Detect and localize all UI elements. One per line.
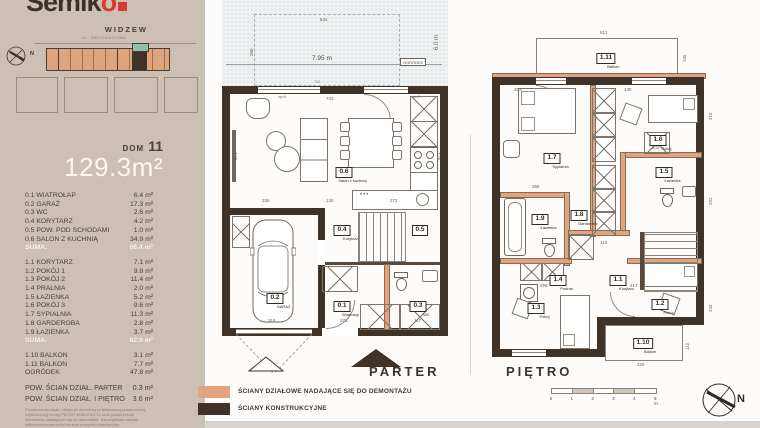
scale-tick-label: 3 [612, 396, 615, 401]
dim-label: 512 [600, 30, 608, 35]
toilet [660, 188, 674, 207]
wardrobe-hatch [322, 266, 358, 292]
plan-parter: 544 200 7.95 m 6.0 m OGRÓDEK hp=0 hp=0 7… [222, 0, 452, 385]
scale-segment [634, 388, 657, 394]
coffee-table [274, 146, 300, 172]
scale-tick-label: 5 m [654, 396, 658, 406]
armchair [503, 140, 520, 158]
dim-label: 110 [600, 240, 607, 245]
stove [410, 147, 438, 173]
dim-label: 316 [268, 318, 276, 323]
list-item: 1.1 KORYTARZ7.1 m² [25, 259, 153, 268]
total-area: 129.3m² [64, 152, 163, 183]
suma-ground: SUMA:66.4 m² [25, 244, 153, 253]
room-label-wc: 0.3 WC [410, 294, 427, 317]
room-label-lazienka-15: 1.5 Łazienka [656, 160, 673, 183]
floor-label-parter: PARTER [369, 364, 439, 379]
list-item: 0.1 WIATROŁAP6.4 m² [25, 192, 153, 201]
wardrobe-hatch [592, 88, 616, 114]
building-outline [64, 77, 108, 113]
desk [619, 102, 642, 125]
highlight-unit-garden [132, 43, 149, 52]
room-label-pokoj-16: 1.6 Pokój [650, 128, 667, 151]
room-label-garaz: 0.2 GARAŻ [267, 286, 284, 309]
wardrobe-hatch [568, 234, 594, 260]
building-outline [16, 77, 58, 113]
plans-divider [470, 135, 471, 375]
list-item: OGRÓDEK47.8 m² [25, 369, 153, 378]
wall [492, 349, 605, 357]
dim-label: 336 [262, 198, 270, 203]
legend-swatch-structural [198, 403, 230, 415]
list-item: 1.7 SYPIALNIA11.3 m² [25, 311, 153, 320]
tv-panel [232, 130, 236, 182]
bed [560, 295, 590, 349]
toilet [542, 238, 556, 257]
dim-label: 7.95 m [312, 55, 332, 62]
brand-mark-icon [118, 2, 127, 11]
dim-label: 430 [624, 87, 632, 92]
kitchen-cabinet-hatch [410, 121, 438, 147]
wardrobe-hatch [360, 304, 400, 330]
compass-n-label: N [737, 393, 745, 405]
armchair [246, 98, 270, 119]
scale-bar: 0 1 2 3 4 5 m [548, 388, 660, 402]
disclaimer-fineprint: Powierzchnia lokalu obejmuje określoną p… [25, 407, 153, 427]
scale-segment [551, 388, 574, 394]
bed [518, 88, 576, 134]
door-opening [318, 240, 325, 265]
brand-logo: Semiko [26, 0, 127, 18]
legend-label-structural: ŚCIANY KONSTRUKCYJNE [238, 405, 327, 412]
terrace-outline [254, 14, 400, 86]
toilet [394, 272, 408, 291]
list-item: 1.9 ŁAZIENKA3.7 m² [25, 329, 153, 338]
room-label-pralnia: 1.4 Pralnia [550, 268, 567, 291]
dim-label: 145 [682, 54, 687, 62]
dim-label: 718 [314, 80, 320, 84]
dim-label: 6.0 m [434, 35, 440, 50]
floorplan-sheet: Semiko WIDZEW UL. MECHANICZNA N DOM11 [0, 0, 760, 428]
chair [392, 136, 402, 146]
compass-mini-n-label: N [30, 51, 34, 57]
list-item: 1.3 POKÓJ 211.4 m² [25, 276, 153, 285]
building-outline [164, 77, 198, 113]
brand-subtitle: WIDZEW [0, 25, 148, 34]
brand-name-accent: o [101, 0, 117, 17]
list-item: 1.8 GARDEROBA2.8 m² [25, 320, 153, 329]
plan-pietro: 512 145 1.11 Balkon hp=0 [492, 0, 744, 385]
room-label-pokoj-13: 1.3 Pokój [528, 296, 545, 319]
wardrobe-hatch [520, 263, 543, 281]
highlight-unit-dom-11 [132, 52, 147, 70]
chair [392, 150, 402, 160]
list-item: 0.3 WC2.6 m² [25, 209, 153, 218]
partition-area-row: POW. ŚCIAN DZIAŁ. I PIĘTRO3.6 m² [25, 394, 153, 405]
list-item: 1.10 BALKON3.1 m² [25, 352, 153, 361]
bed [644, 263, 698, 287]
wall [440, 86, 448, 336]
chair [340, 122, 350, 132]
list-item: 0.4 KORYTARZ4.2 m² [25, 218, 153, 227]
list-item: 1.6 POKÓJ 39.6 m² [25, 302, 153, 311]
brand-name: Semik [26, 0, 101, 17]
wall [597, 317, 704, 325]
scale-tick-label: 0 [550, 396, 553, 401]
wardrobe-hatch [592, 136, 616, 162]
floor-label-pietro: PIĘTRO [506, 364, 572, 379]
dim-label: 368 [532, 184, 540, 189]
window-tag: hp=0 [278, 95, 286, 99]
list-item: 1.4 PRALNIA2.0 m² [25, 285, 153, 294]
washbasin [682, 186, 696, 197]
room-label-balkon-10: 1.10 Balkon [633, 331, 653, 354]
window [512, 350, 546, 356]
north-compass-mini-icon [5, 45, 29, 69]
room-label-korytarz-11: 1.1 Korytarz [610, 268, 627, 291]
kitchen-cabinet-hatch [410, 96, 438, 122]
scale-tick-label: 4 [633, 396, 636, 401]
room-label-salon: 0.6 Salon z kuchnią [336, 160, 353, 183]
dim-label: 215 [708, 112, 713, 120]
dining-table [348, 118, 394, 168]
scale-segment [572, 388, 595, 394]
wall [492, 77, 704, 85]
room-label-korytarz: 0.4 Korytarz [334, 218, 351, 241]
room-label-balkon-11: 1.11 Balkon [596, 46, 615, 69]
scale-tick-label: 1 [571, 396, 574, 401]
list-item: 0.2 GARAŻ17.3 m² [25, 201, 153, 210]
bathtub [504, 198, 526, 256]
scale-segment [593, 388, 616, 394]
sink [416, 193, 429, 206]
room-label-pod-schodami: 0.5 [412, 218, 428, 236]
entry-marker-outline-icon [248, 356, 284, 373]
window [632, 78, 666, 84]
drawer-dots: ••• [360, 192, 369, 198]
dim-label: 743 [326, 96, 334, 101]
entrance-opening [322, 328, 358, 336]
partition-wall [620, 152, 626, 234]
room-list: 0.1 WIATROŁAP6.4 m² 0.2 GARAŻ17.3 m² 0.3… [25, 192, 153, 404]
bed [648, 95, 698, 123]
street-label: UL. MECHANICZNA [34, 35, 174, 40]
dim-label: 256 [540, 283, 548, 288]
room-label-wiatrolap: 0.1 Wiatrołap [334, 294, 351, 317]
room-label-lazienka-19: 1.9 Łazienka [532, 207, 549, 230]
dim-label: 112 [685, 343, 690, 350]
dim-label: 272 [390, 198, 398, 203]
scale-tick-label: 2 [591, 396, 594, 401]
chair [340, 136, 350, 146]
building-outline [114, 77, 158, 113]
dim-label: 226 [637, 362, 645, 367]
legend-swatch-partition [198, 386, 230, 398]
chair [392, 122, 402, 132]
washbasin [422, 270, 438, 282]
wall [492, 77, 500, 357]
dim-label: 243 [708, 304, 713, 312]
wall [597, 317, 605, 357]
list-item: 0.6 SALON Z KUCHNIĄ34.9 m² [25, 236, 153, 245]
wardrobe-hatch [592, 112, 616, 138]
sidebar: Semiko WIDZEW UL. MECHANICZNA N DOM11 [0, 0, 205, 428]
partition-area-row: POW. ŚCIAN DZIAŁ. PARTER0.3 m² [25, 383, 153, 394]
scale-segment [613, 388, 636, 394]
window [364, 87, 408, 93]
chair [340, 150, 350, 160]
door-arc [364, 94, 391, 121]
balcony-door-arc [610, 292, 635, 317]
dim-label: 303 [514, 87, 522, 92]
window [258, 87, 320, 93]
wardrobe-hatch [592, 188, 616, 213]
row-houses [46, 48, 170, 71]
wall [222, 208, 318, 215]
balcony-door [536, 78, 566, 84]
dim-label: 130 [326, 198, 334, 203]
thin-wall [325, 262, 440, 265]
room-label-garderoba: 1.8 Garderoba [571, 203, 588, 226]
suma-floor: SUMA:62.9 m² [25, 337, 153, 346]
legend-label-partition: ŚCIANY DZIAŁOWE NADAJĄCE SIĘ DO DEMONTAŻ… [238, 388, 412, 395]
bottom-band [205, 421, 760, 428]
list-item: 0.5 POW. POD SCHODAMI1.0 m² [25, 227, 153, 236]
dim-label: 232 [708, 197, 713, 205]
sofa [300, 118, 328, 182]
garden-tag: OGRÓDEK [400, 58, 426, 66]
street-line [34, 43, 196, 44]
site-plan: UL. MECHANICZNA N [4, 35, 200, 113]
shelf-hatch [232, 216, 250, 248]
dim-label: 200 [249, 48, 254, 56]
wardrobe-hatch [592, 165, 616, 190]
room-label-sypialnia: 1.7 Sypialnia [544, 146, 561, 169]
room-label-pokoj-12: 1.2 Pokój [652, 292, 669, 315]
dim-label: 544 [320, 17, 328, 22]
wall [222, 86, 448, 94]
